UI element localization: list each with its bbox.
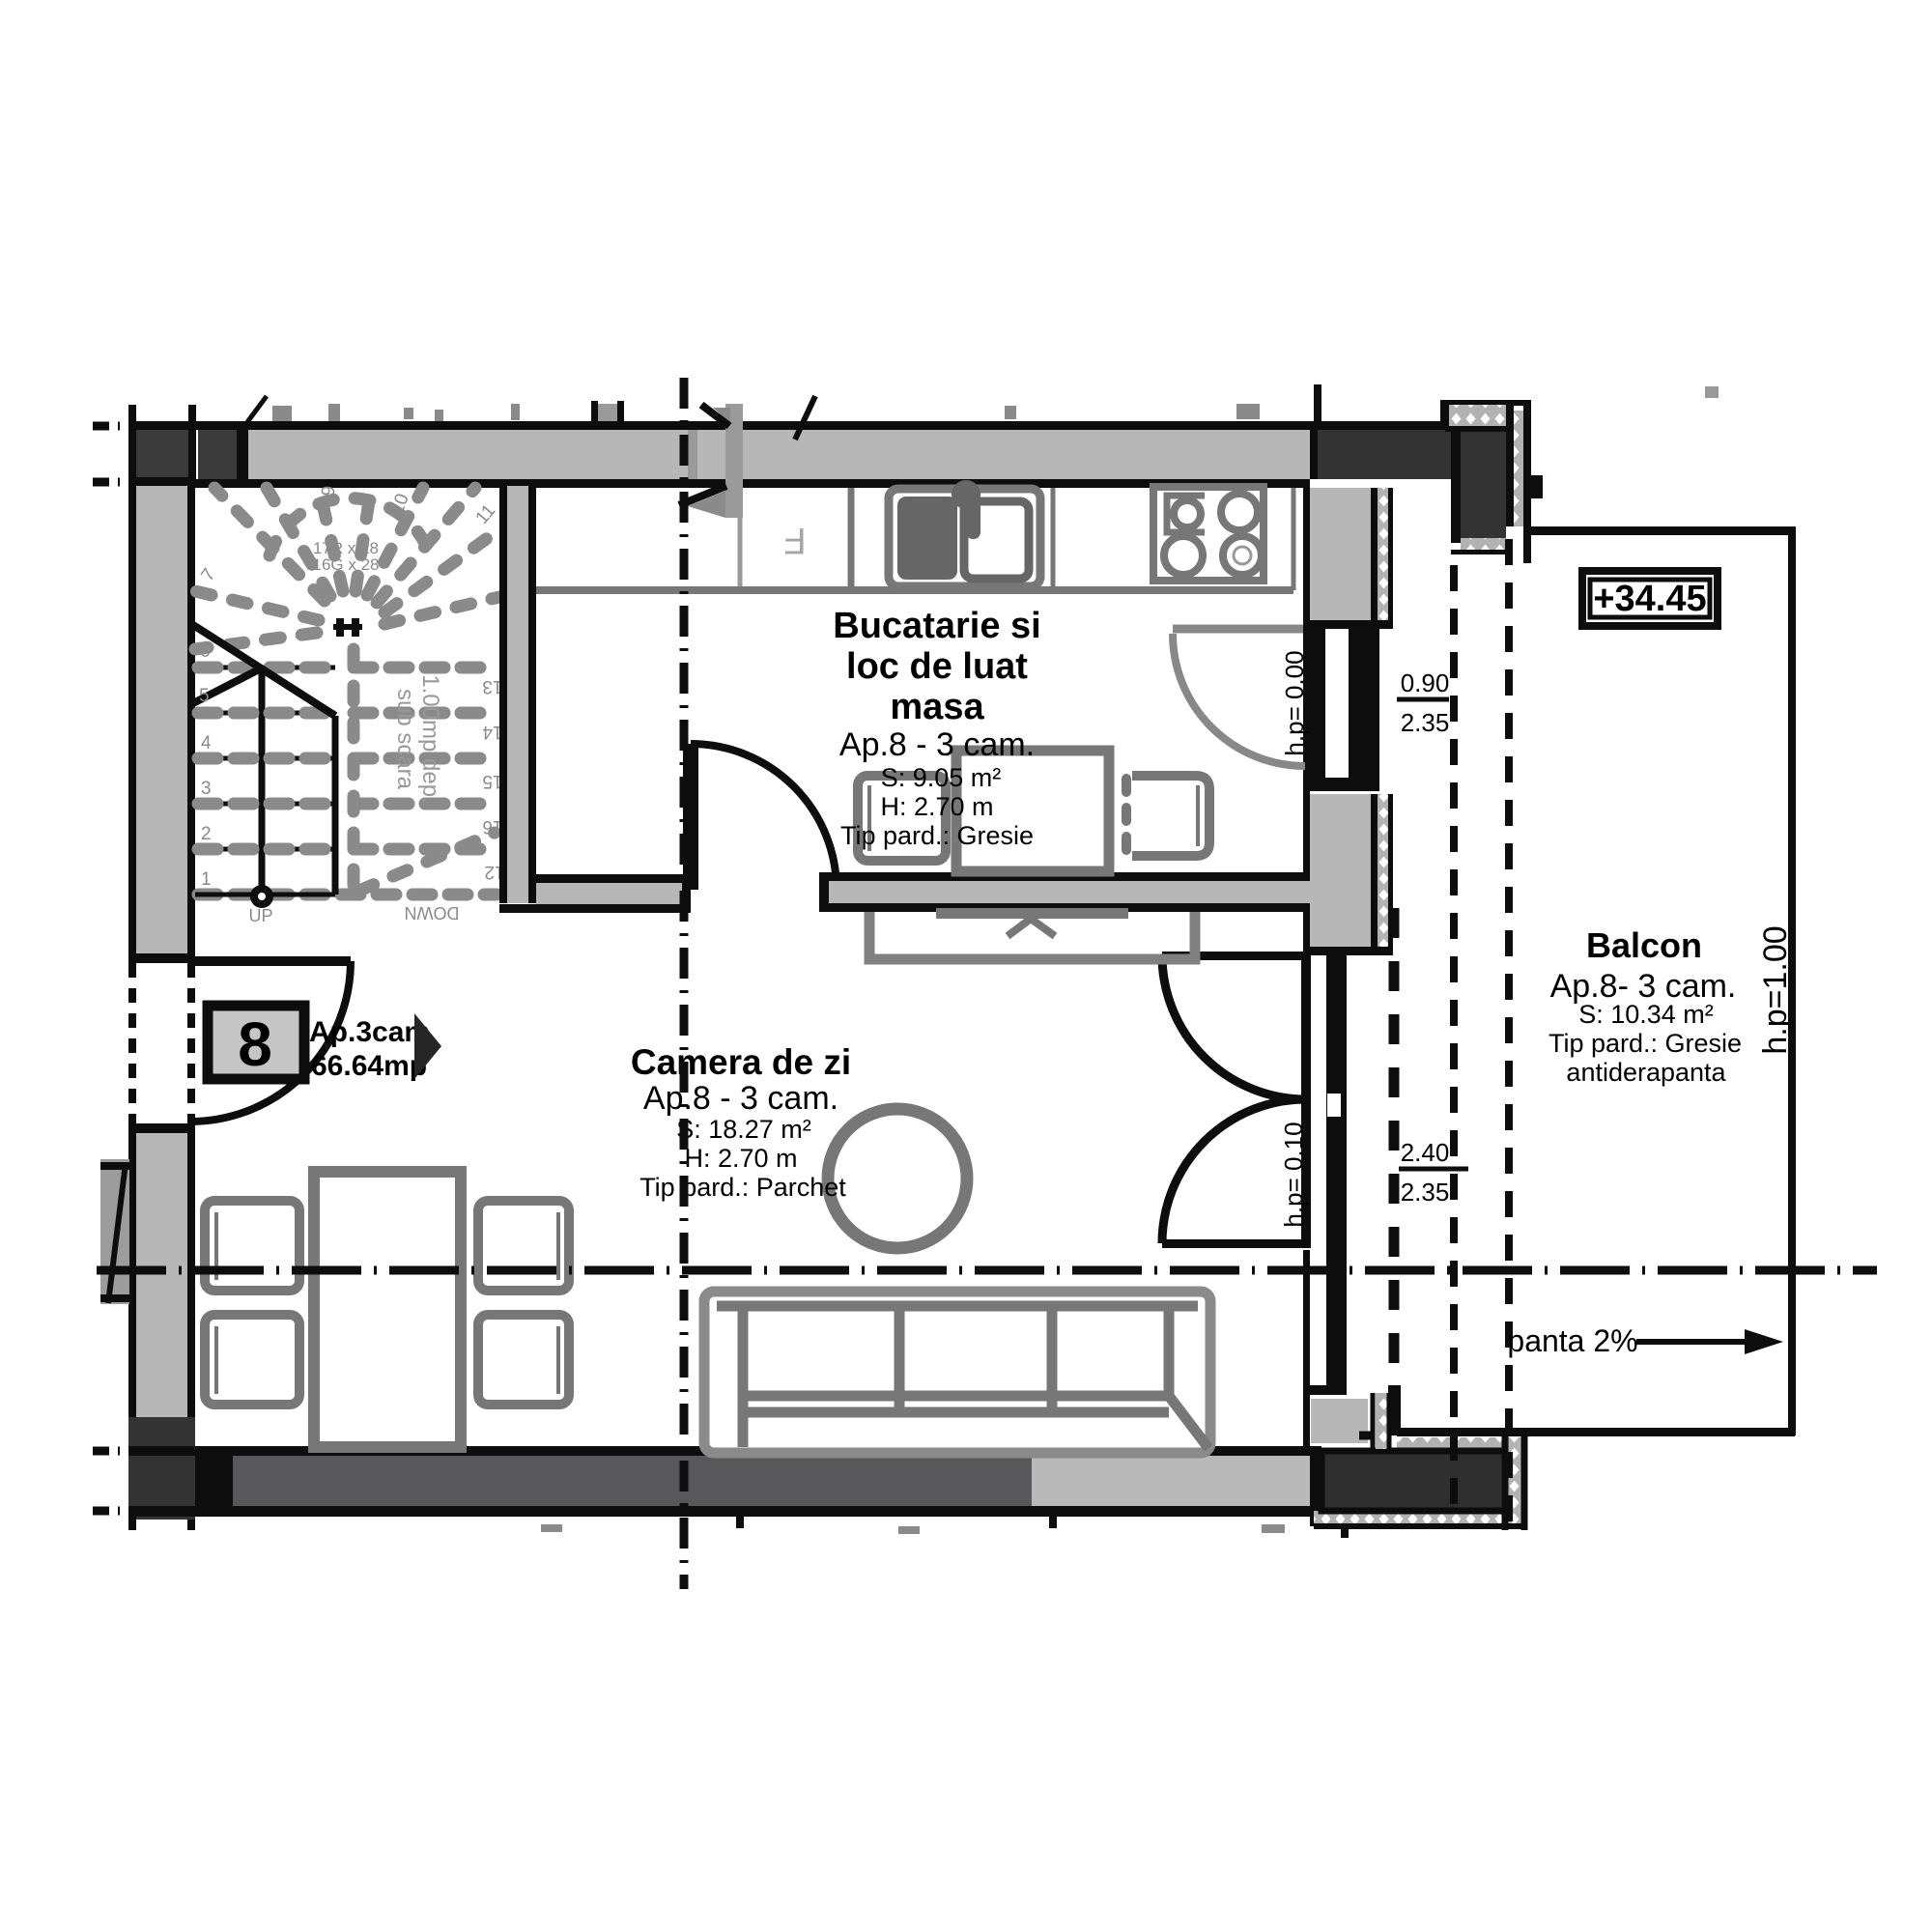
svg-text:S: 9.05 m²: S: 9.05 m² [881,763,1002,792]
svg-text:masa: masa [890,687,984,727]
svg-text:Tip pard.: Gresie: Tip pard.: Gresie [1548,1029,1742,1058]
svg-text:6: 6 [200,641,211,662]
svg-text:Ap.8 - 3 cam.: Ap.8 - 3 cam. [643,1080,838,1117]
svg-text:Ap.3cam: Ap.3cam [309,1016,430,1048]
svg-text:5: 5 [199,686,210,706]
svg-text:loc de luat: loc de luat [846,646,1028,687]
svg-text:66.64mp: 66.64mp [311,1050,427,1082]
svg-text:2.35: 2.35 [1401,708,1450,737]
svg-text:Tip pard.: Gresie: Tip pard.: Gresie [840,821,1034,850]
svg-text:Camera de zi: Camera de zi [631,1042,851,1082]
svg-text:DOWN: DOWN [405,903,460,923]
svg-text:1.00mp dep.: 1.00mp dep. [417,674,443,803]
svg-text:2.35: 2.35 [1401,1178,1450,1207]
svg-text:+34.45: +34.45 [1593,579,1706,619]
svg-text:panta 2%: panta 2% [1507,1323,1637,1358]
svg-text:16G x 28: 16G x 28 [313,555,380,574]
svg-text:0.90: 0.90 [1401,668,1450,697]
svg-text:F: F [783,520,806,560]
svg-text:H: 2.70 m: H: 2.70 m [880,792,993,821]
svg-text:h.p=1.00: h.p=1.00 [1757,925,1794,1054]
svg-text:Ap.8 - 3 cam.: Ap.8 - 3 cam. [839,726,1035,763]
svg-text:UP: UP [248,906,272,925]
svg-text:8: 8 [238,1009,272,1079]
svg-text:9: 9 [319,485,340,497]
svg-text:S: 10.34 m²: S: 10.34 m² [1578,1000,1714,1029]
svg-text:2.40: 2.40 [1401,1138,1450,1167]
svg-text:h.p= 0.10: h.p= 0.10 [1279,1122,1308,1227]
svg-text:Bucatarie si: Bucatarie si [833,606,1040,646]
svg-text:2: 2 [201,824,212,844]
svg-text:H: 2.70 m: H: 2.70 m [684,1144,797,1173]
svg-text:Balcon: Balcon [1586,925,1702,965]
svg-text:3: 3 [201,779,212,799]
svg-text:1: 1 [201,869,212,890]
svg-text:S: 18.27 m²: S: 18.27 m² [676,1115,811,1144]
svg-text:4: 4 [201,733,212,753]
svg-text:h.p= 0.00: h.p= 0.00 [1280,650,1309,755]
svg-text:antiderapanta: antiderapanta [1566,1058,1726,1087]
svg-text:Tip pard.: Parchet: Tip pard.: Parchet [639,1173,846,1202]
svg-text:sub scara: sub scara [392,689,418,790]
